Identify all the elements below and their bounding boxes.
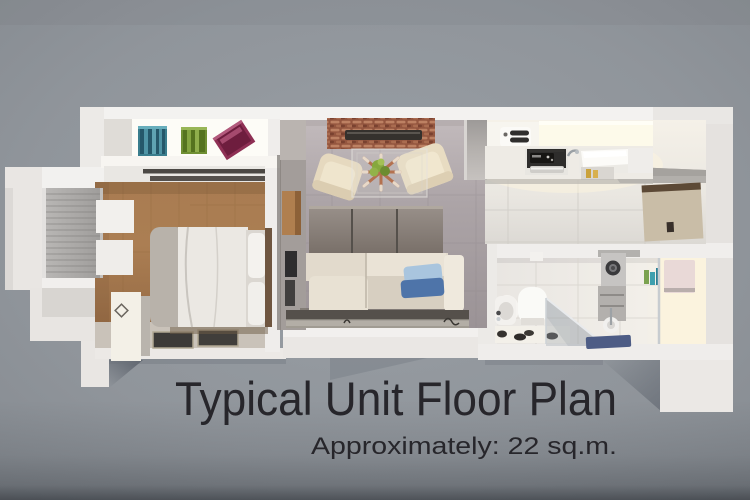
svg-text:Typical Unit Floor Plan: Typical Unit Floor Plan <box>175 372 617 425</box>
svg-text:Approximately: 22 sq.m.: Approximately: 22 sq.m. <box>311 433 617 460</box>
